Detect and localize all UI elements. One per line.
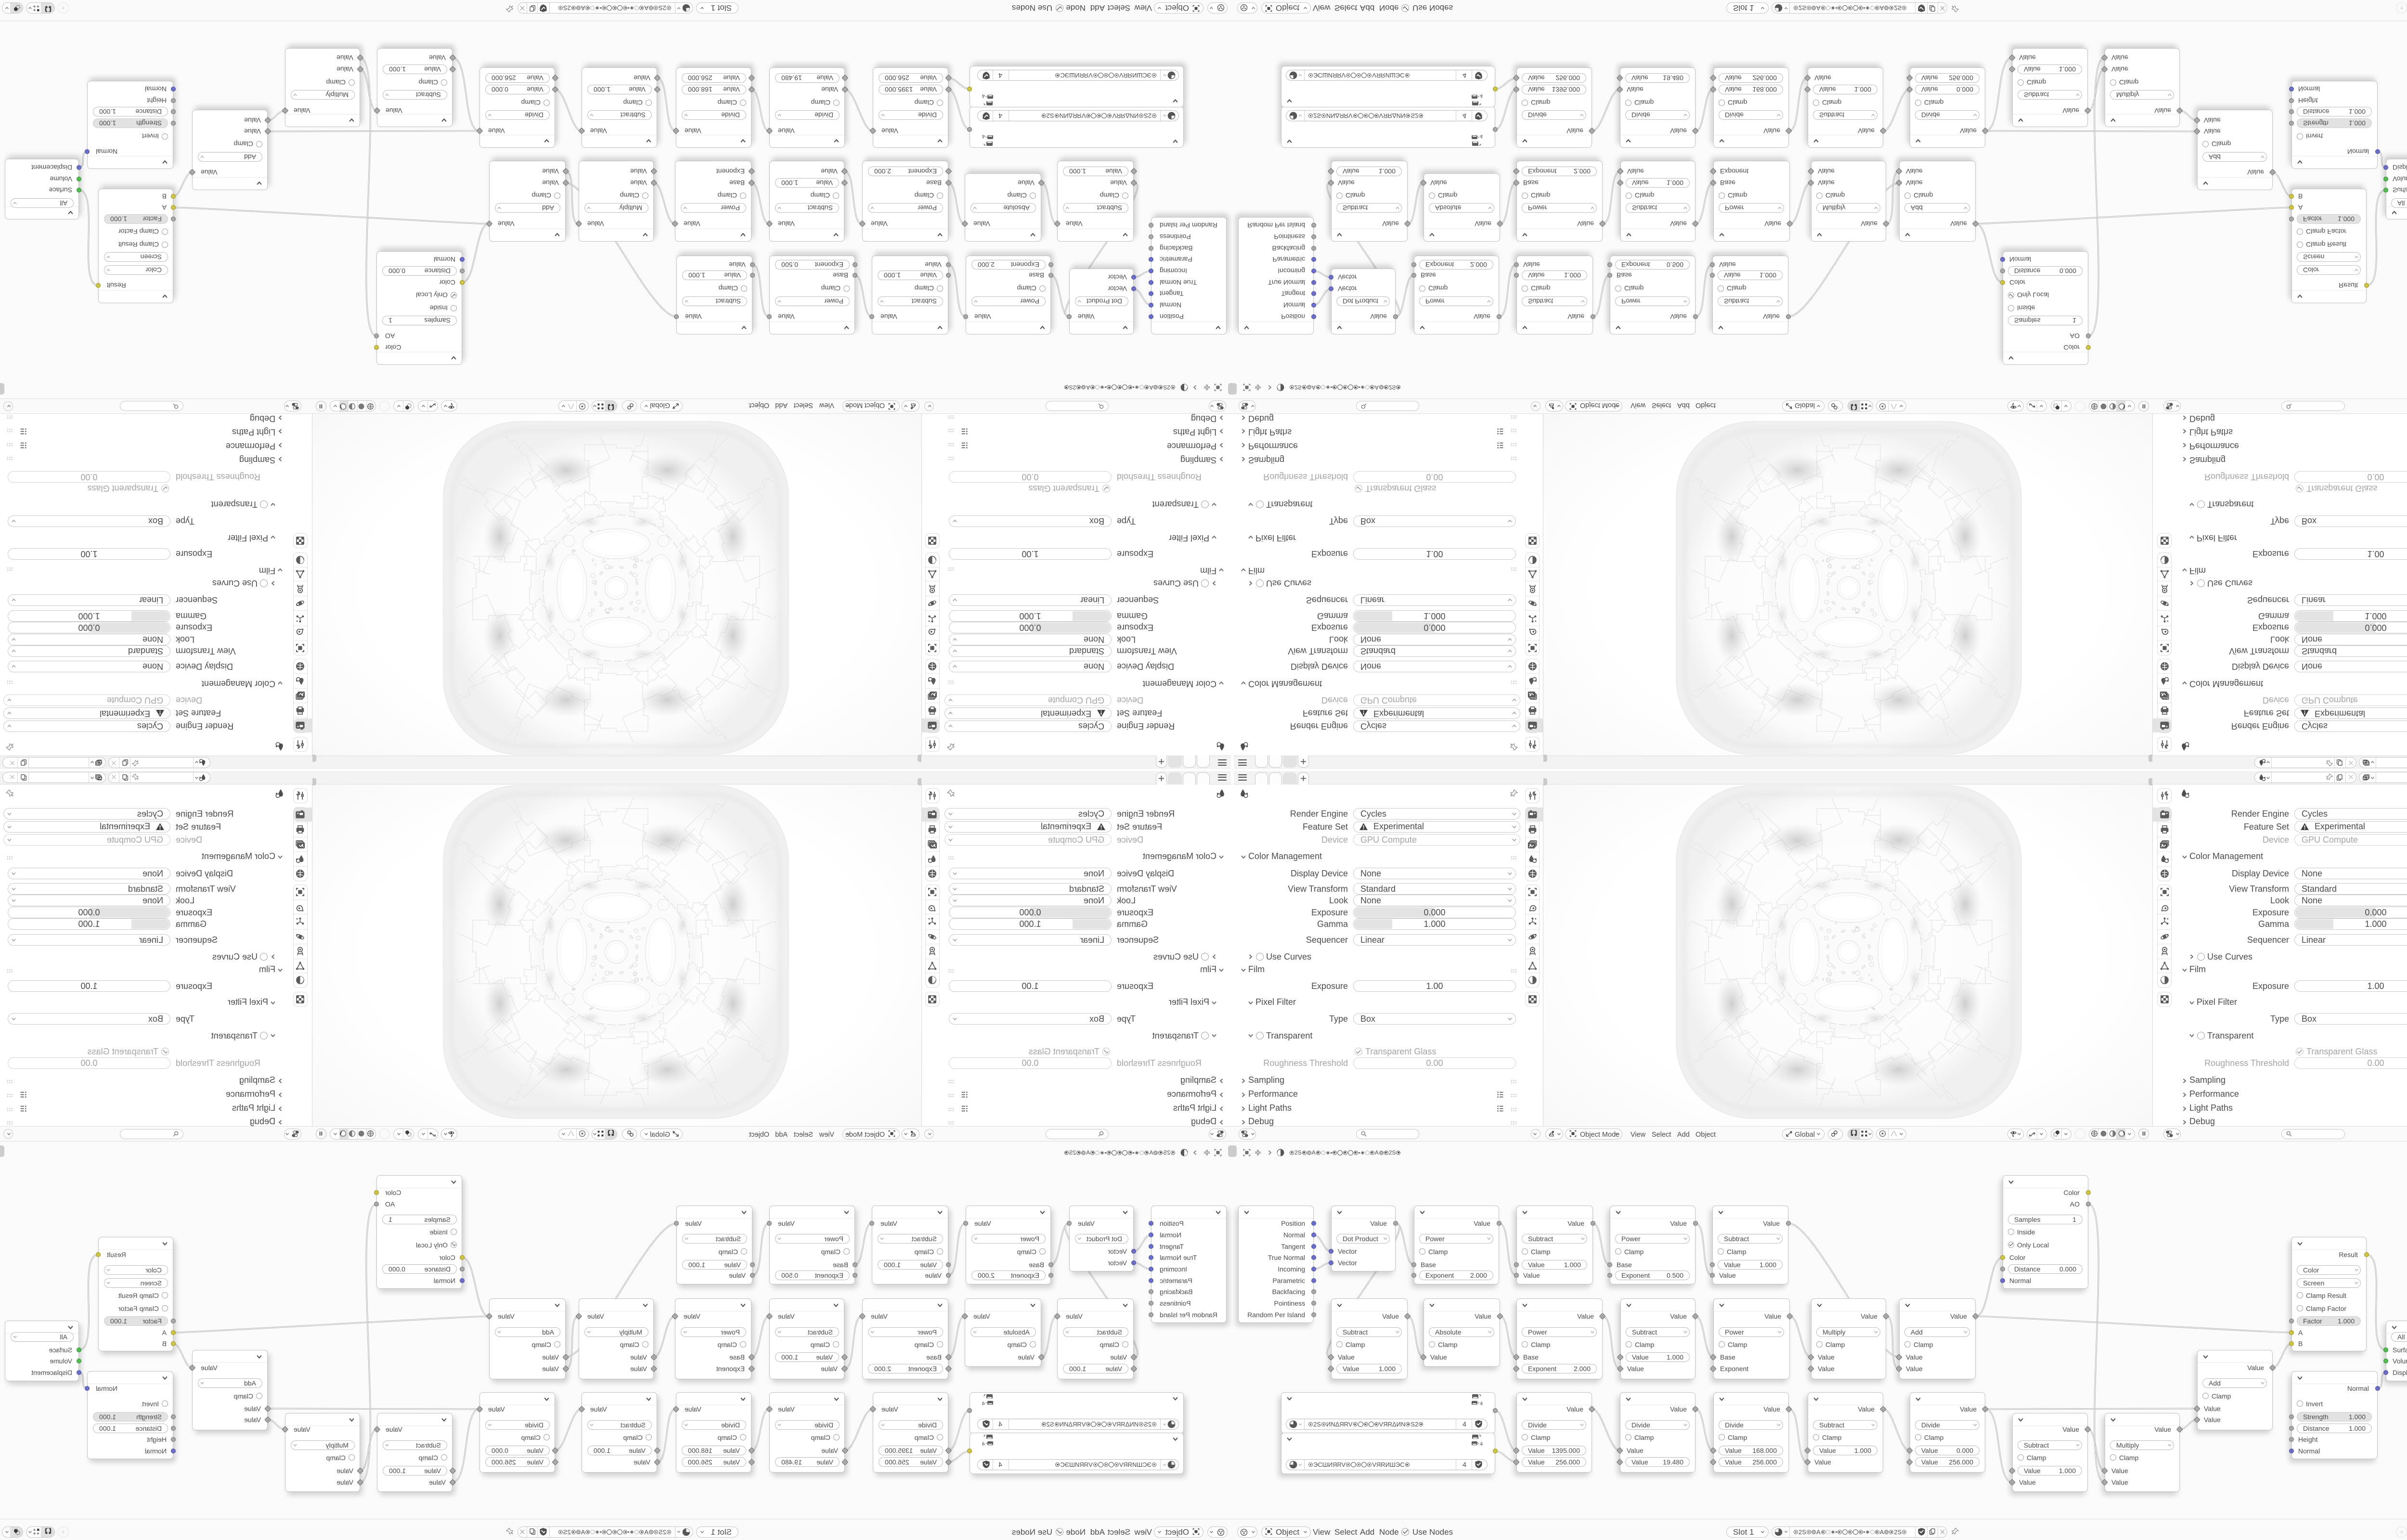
- svg-text:4: 4: [982, 93, 985, 99]
- svg-text:4: 4: [1480, 1401, 1483, 1407]
- svg-text:4: 4: [982, 1401, 985, 1407]
- svg-text:4: 4: [1480, 133, 1483, 139]
- svg-text:4: 4: [982, 1441, 985, 1447]
- svg-text:4: 4: [1480, 93, 1483, 99]
- svg-text:4: 4: [982, 133, 985, 139]
- svg-text:4: 4: [1480, 1441, 1483, 1447]
